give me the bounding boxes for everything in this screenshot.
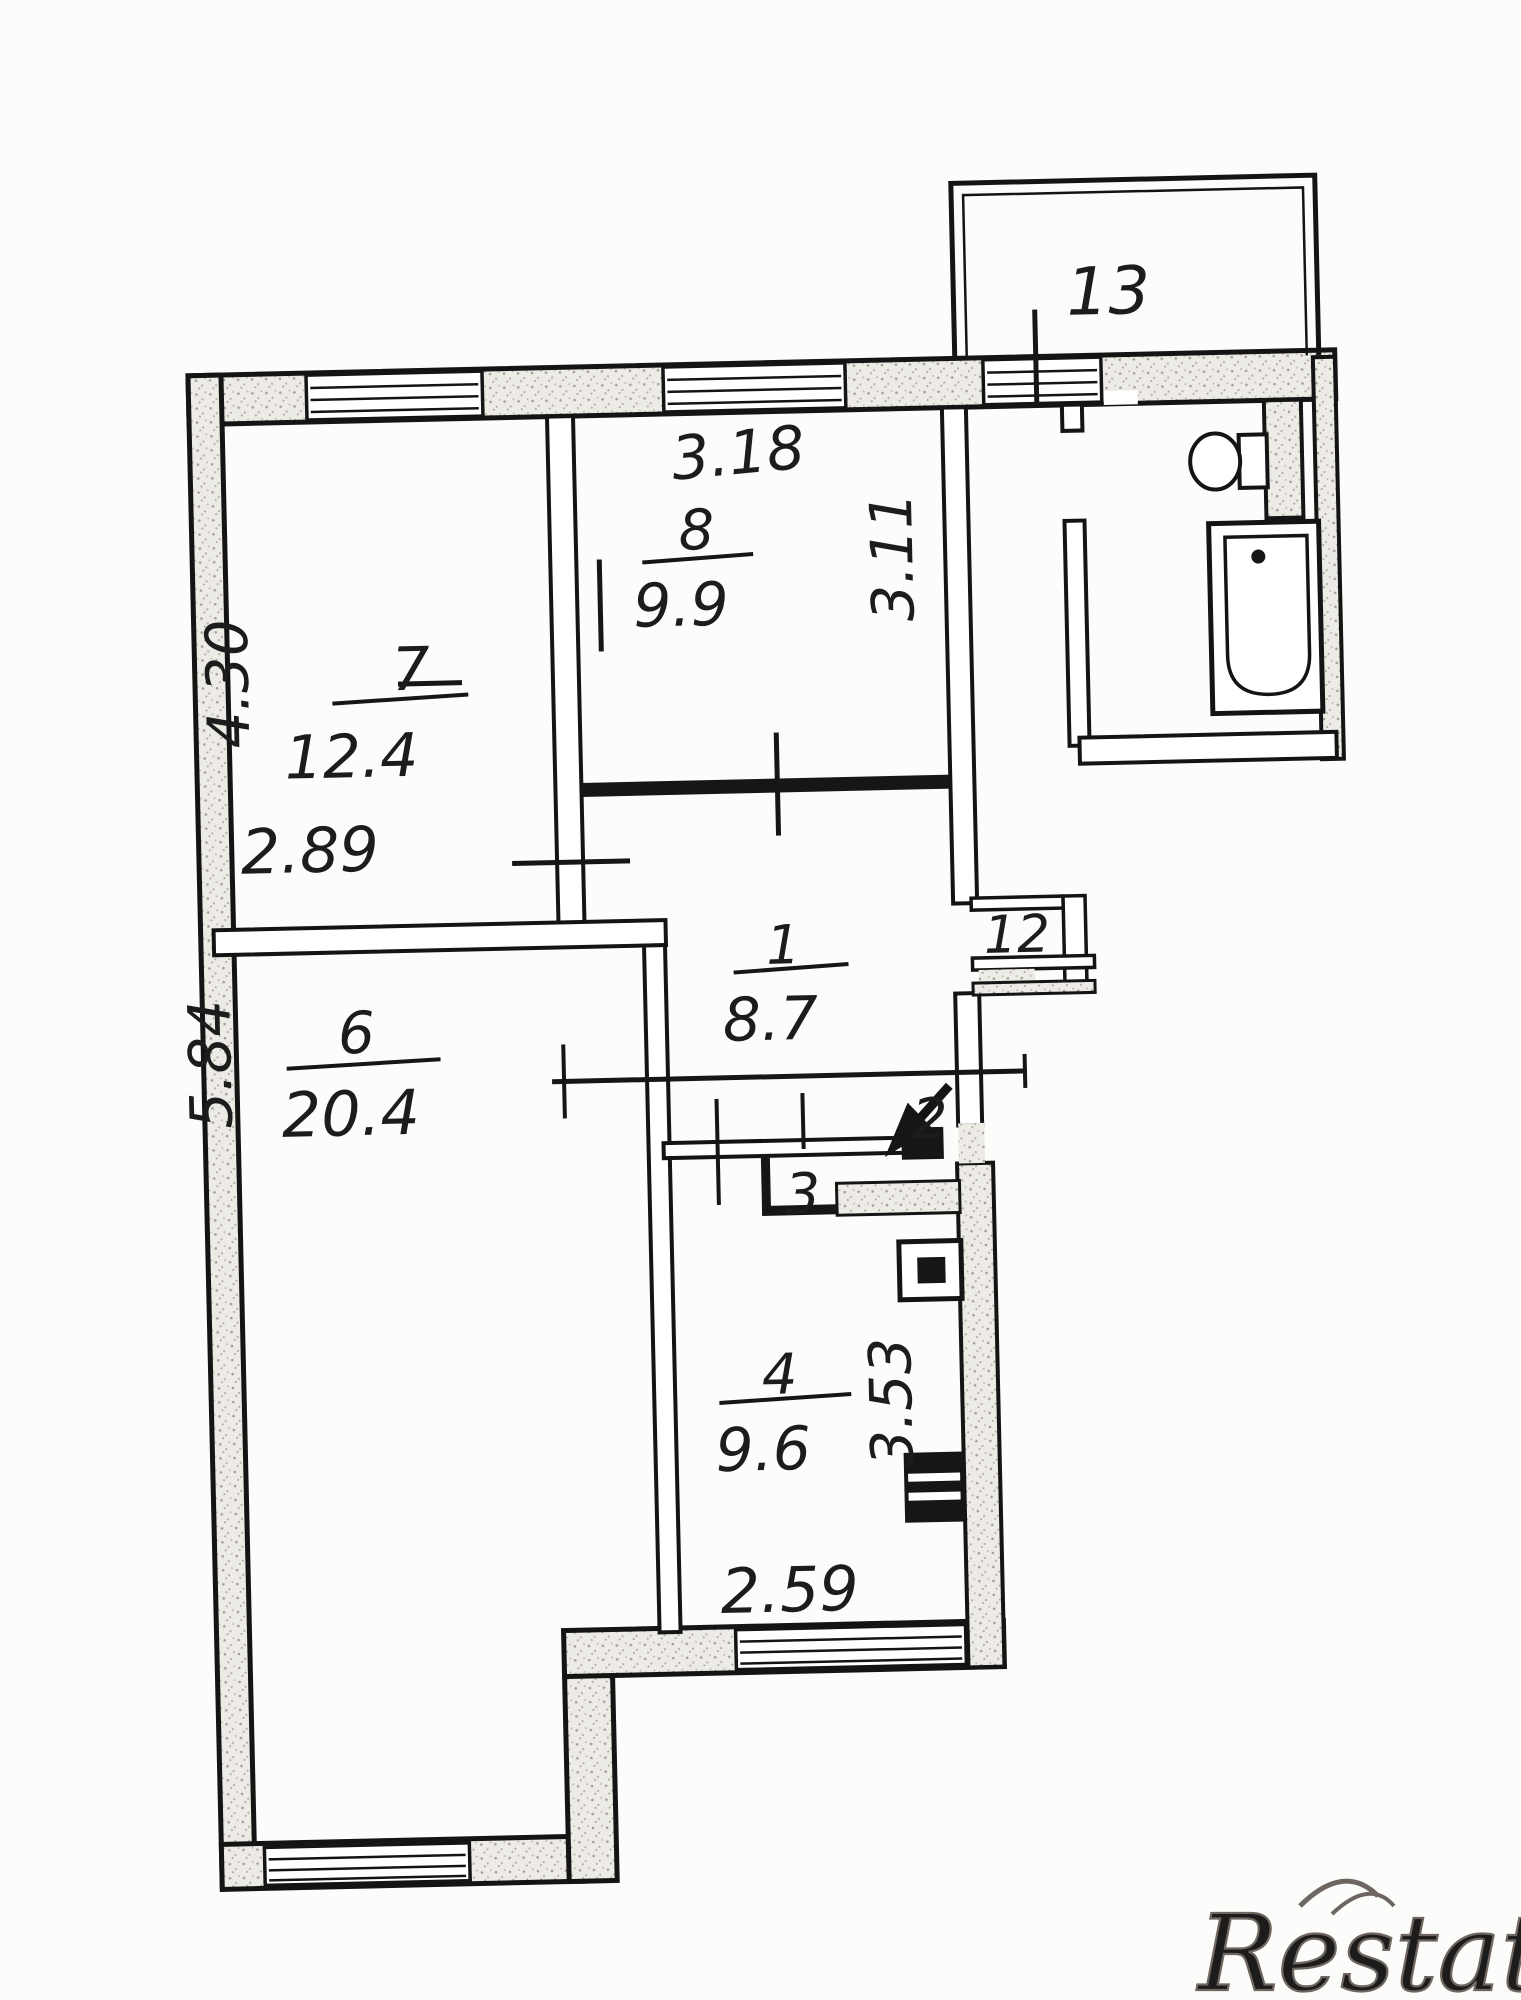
toilet-icon [1190, 432, 1268, 490]
tick-balcony [1035, 310, 1037, 404]
bottom-step-wall [564, 1671, 617, 1881]
room-1-area: 8.7 [722, 984, 819, 1056]
bath-shaft-wall [1264, 400, 1304, 519]
electrical-panel-icon [899, 1240, 962, 1299]
wall-7-8 [547, 416, 585, 924]
watermark-brand: Restate [1196, 1892, 1521, 2000]
wall-8-bottom [581, 775, 951, 797]
wall-7-bottom [214, 920, 666, 955]
room12-right-wall [1063, 896, 1087, 990]
window-living [264, 1843, 470, 1886]
room-6-label: 6 [337, 999, 375, 1068]
room3-top-wall [664, 1138, 908, 1159]
dim-584-label: 5.84 [175, 999, 246, 1130]
room3-hatched-wall [836, 1180, 960, 1215]
room-7-area: 12.4 [284, 721, 419, 794]
room-4-area: 9.6 [715, 1414, 812, 1486]
room-8-area: 9.9 [633, 570, 730, 642]
tick-hall-3 [802, 1093, 803, 1149]
floor-plan: 13 3.18 8 9.9 3.11 7 12.4 4.30 2.89 1 8.… [157, 175, 1369, 1890]
left-wall [188, 375, 255, 1887]
tick-room8-left [599, 560, 601, 652]
wall-1-6 [644, 945, 681, 1632]
dim-289-label: 2.89 [240, 813, 380, 889]
tick-hall-1 [563, 1044, 565, 1118]
dim-353-label: 3.53 [856, 1337, 927, 1468]
floor-plan-page: 13 3.18 8 9.9 3.11 7 12.4 4.30 2.89 1 8.… [0, 0, 1521, 2000]
dim-259-label: 2.59 [720, 1552, 860, 1628]
room-12-label: 12 [983, 904, 1051, 965]
fixtures [869, 431, 1341, 1523]
floor-plan-canvas: 13 3.18 8 9.9 3.11 7 12.4 4.30 2.89 1 8.… [0, 0, 1521, 2000]
tick-hall-2 [717, 1099, 719, 1205]
dim-line-289 [512, 861, 630, 864]
tick-room8-bottom [776, 733, 778, 836]
dim-311-label: 3.11 [857, 492, 928, 623]
tick-hall-4 [1025, 1054, 1026, 1088]
dim-430-label: 4.30 [193, 619, 264, 750]
window-room8 [663, 363, 846, 412]
room-8-label: 8 [678, 498, 715, 564]
room-2-label: 2 [911, 1087, 948, 1153]
dim-318-label: 3.18 [668, 413, 807, 495]
watermark: Restate [1196, 1881, 1521, 2000]
window-kitchen [736, 1624, 967, 1669]
entrance-threshold [958, 1123, 985, 1164]
bathtub-icon [1209, 521, 1323, 713]
bath-left-wall [1064, 520, 1089, 745]
room-6-area: 20.4 [281, 1076, 421, 1152]
kitchen-right-wall [957, 1163, 1004, 1668]
room12-outer-wall [973, 980, 1095, 995]
room-3-label: 3 [784, 1162, 821, 1228]
bath-bottom-wall [1079, 732, 1337, 764]
wall-corridor-right-mid [955, 993, 982, 1126]
room-7-label: 7 [391, 634, 431, 705]
wall-corridor-right-upper [942, 407, 977, 903]
bath-left-wall-stub [1062, 405, 1083, 431]
window-room7 [306, 371, 483, 420]
room-13-label: 13 [1065, 252, 1151, 331]
